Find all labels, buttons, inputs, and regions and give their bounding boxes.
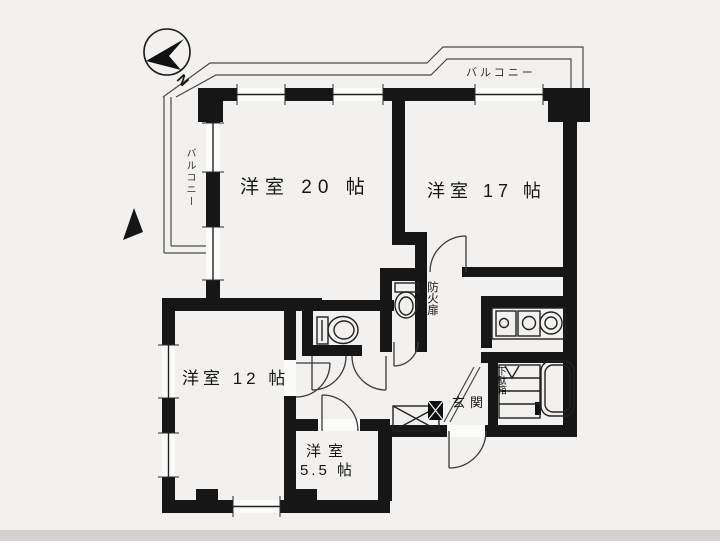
fire-door-label: 防火扉 xyxy=(424,281,440,316)
scan-edge-strip xyxy=(0,530,720,541)
kitchen-sink-icon xyxy=(492,308,565,339)
room-label-western55-line1: 洋室 xyxy=(306,440,350,461)
north-arrow-icon xyxy=(144,29,190,75)
toilet-icon-2 xyxy=(395,283,418,318)
entrance-label: 玄関 xyxy=(452,392,488,411)
ink-mark xyxy=(123,208,143,240)
room-label-western17: 洋室 17 帖 xyxy=(427,177,546,203)
room-label-western55-line2: 5.5 帖 xyxy=(300,459,355,480)
floor-plan-drawing xyxy=(0,0,720,541)
floor-plan-page: N バルコニー バルコニー 洋室 20 帖 洋室 17 帖 洋室 12 帖 洋室… xyxy=(0,0,720,541)
balcony-top-label: バルコニー xyxy=(466,64,536,80)
room-label-western20: 洋室 20 帖 xyxy=(240,172,371,199)
walls xyxy=(162,88,590,513)
room-label-western12: 洋室 12 帖 xyxy=(182,364,289,389)
toilet-icon xyxy=(317,317,358,345)
balcony-left-label: バルコニー xyxy=(182,148,197,208)
shoe-cabinet-label: 下駄箱 xyxy=(493,366,507,395)
